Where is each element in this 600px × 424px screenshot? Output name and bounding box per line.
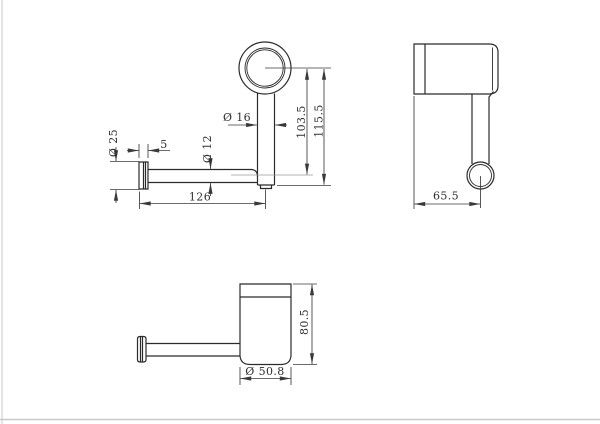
dim-label-post-dia: Ø 16 (223, 111, 251, 124)
wall-flange (139, 162, 148, 189)
dim-label-ring-dia: Ø 50.8 (245, 365, 284, 378)
side-view (414, 44, 498, 189)
post-bar (258, 93, 275, 189)
dim-label-depth: 65.5 (433, 190, 459, 203)
ring-top-profile (240, 284, 291, 365)
arm-bar (148, 170, 258, 183)
arm-top (146, 344, 240, 357)
dim-label-ring-depth: 80.5 (298, 309, 311, 335)
drawing-page: Ø 16 Ø 12 Ø 25 5 103.5 115.5 126 65.5 (0, 0, 600, 424)
ring-side-profile (414, 44, 498, 94)
wall-flange-top (138, 337, 147, 363)
bottom-view (138, 284, 292, 365)
dim-label-flange-depth: 5 (160, 138, 167, 151)
dim-label-arm-length: 126 (189, 191, 211, 204)
post-side (472, 92, 494, 165)
dim-label-flange-dia: Ø 25 (107, 129, 120, 157)
dim-label-arm-dia: Ø 12 (201, 135, 214, 163)
dim-label-total-height: 115.5 (313, 104, 326, 138)
front-view (139, 42, 291, 189)
sheet-frame (0, 0, 600, 424)
technical-drawing-canvas: Ø 16 Ø 12 Ø 25 5 103.5 115.5 126 65.5 (0, 0, 600, 424)
dim-label-center-height: 103.5 (295, 105, 308, 139)
bottom-view-dim-labels: 80.5 Ø 50.8 (245, 309, 311, 378)
